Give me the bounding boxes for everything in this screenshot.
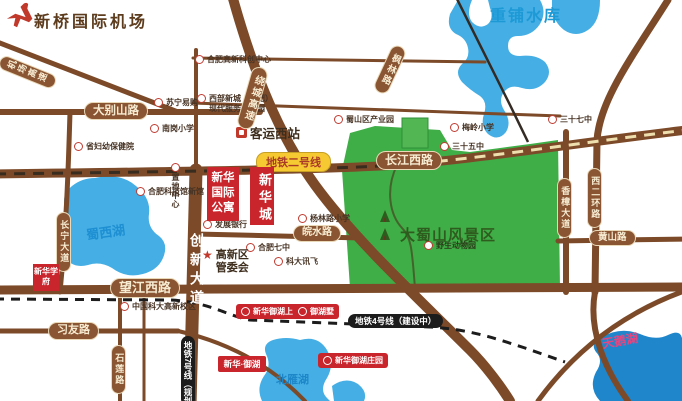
project-yuhu-shu-label: 御湖墅 (310, 306, 334, 317)
project-xinhua-intl-apartment: 新华国际公寓 (207, 167, 239, 221)
trees-icon (380, 209, 400, 245)
huangshan-road-pill: 黄山路 (589, 230, 636, 246)
beiyan-lake-shape-2 (332, 380, 365, 401)
poi-iflytek-label: 科大讯飞 (286, 256, 318, 267)
poi-icon (171, 163, 180, 172)
poi-west-coach-station-label: 客运西站 (250, 123, 300, 142)
project-badge-icon (298, 307, 307, 316)
metro-line7-pill: 地铁7号线（规划中） (181, 336, 195, 401)
poi-icon (274, 257, 283, 266)
metro-line4-pill: 地铁4号线（建设中） (348, 314, 443, 328)
xiyou-road-pill: 习友路 (48, 322, 99, 340)
poi-iflytek: 科大讯飞 (274, 256, 318, 267)
poi-icon (150, 124, 159, 133)
map-canvas: 新桥国际机场 重铺水库 蜀西湖 北雁湖 天鹅湖 大蜀山风景区 大别山路 长江西路… (0, 0, 682, 401)
poi-icon (154, 98, 163, 107)
project-logo-box: 新华·御湖 (218, 356, 266, 372)
poi-no35-label: 三十五中 (452, 141, 484, 152)
wanshui-road-pill: 皖水路 (293, 225, 341, 242)
small-park-shape (402, 118, 428, 148)
xiangzhang-avenue-pill: 香樟大道 (557, 178, 572, 238)
poi-gaoxin-kechuang: 合肥高新科创中心 (195, 54, 271, 65)
project-yuhu-shu: 御湖墅 (293, 304, 339, 319)
poi-hi-tech-committee: ★ 高新区管委会 (202, 249, 252, 274)
project-yuhu-zhuangyuan: 新华御湖庄园 (318, 353, 388, 368)
airplane-icon (7, 3, 33, 27)
poi-icon (136, 187, 145, 196)
airport-title: 新桥国际机场 (34, 8, 148, 32)
chongpu-reservoir-label: 重铺水库 (490, 2, 562, 26)
poi-meiling-school: 梅岭小学 (450, 122, 494, 133)
poi-suning-label: 苏宁易购 (166, 97, 198, 108)
project-yuhu-zhuangyuan-label: 新华御湖庄园 (335, 355, 383, 366)
poi-icon (424, 241, 433, 250)
poi-no37-school: 三十七中 (548, 114, 592, 125)
poi-no35-school: 三十五中 (440, 141, 484, 152)
poi-icon (450, 123, 459, 132)
beiyan-lake-label: 北雁湖 (276, 371, 309, 387)
poi-icon (120, 302, 129, 311)
poi-yanglinlu-school: 杨林路小学 (298, 213, 350, 224)
poi-fuyou-label: 省妇幼保健院 (86, 141, 134, 152)
project-xuefu-box: 新华学府 (33, 264, 59, 291)
poi-zhidi-center: 置地中心 (170, 163, 181, 209)
poi-icon (197, 94, 206, 103)
changning-avenue-pill: 长宁大道 (56, 212, 71, 272)
poi-yanglinlu-school-label: 杨林路小学 (310, 213, 350, 224)
poi-nangang-school: 南岗小学 (150, 123, 194, 134)
west-2nd-ring-pill: 西二环路 (587, 168, 602, 228)
poi-icon (334, 115, 343, 124)
map-base-svg (0, 0, 682, 401)
poi-icon (298, 214, 307, 223)
poi-icon (195, 55, 204, 64)
poi-gaoxin-kechuang-label: 合肥高新科创中心 (207, 54, 271, 65)
poi-hefei-qizhong: 合肥七中 (246, 242, 290, 253)
chuangxin-avenue-name: 创新大道 (187, 233, 207, 309)
poi-nangang-label: 南岗小学 (162, 123, 194, 134)
west-2nd-ring-road (595, 0, 668, 292)
poi-icon (74, 142, 83, 151)
shilian-road-pill: 石莲路 (111, 345, 126, 394)
wangjiangxi-road (0, 287, 682, 290)
poi-icon (440, 142, 449, 151)
wangjiangxi-road-pill: 望江西路 (110, 278, 180, 298)
poi-icon (548, 115, 557, 124)
poi-wildlife-zoo: 野生动物园 (424, 240, 476, 251)
poi-meiling-school-label: 梅岭小学 (462, 122, 494, 133)
project-badge-icon (241, 307, 250, 316)
airport-label: 新桥国际机场 (34, 8, 148, 32)
changjiangxi-road-pill: 长江西路 (376, 151, 442, 170)
poi-shushan-industrial-park-label: 蜀山区产业园 (346, 114, 394, 125)
poi-zhidi-label: 置地中心 (170, 173, 181, 209)
project-xinhua-city: 新华城 (250, 167, 274, 225)
dabieshan-road-pill: 大别山路 (84, 102, 148, 120)
poi-fuyou-hospital: 省妇幼保健院 (74, 141, 134, 152)
poi-hi-tech-committee-label: 高新区管委会 (216, 249, 252, 274)
poi-ustc-campus: 中国科大高新校区 (120, 301, 196, 312)
poi-shushan-industrial-park: 蜀山区产业园 (334, 114, 394, 125)
poi-no37-label: 三十七中 (560, 114, 592, 125)
poi-wildlife-zoo-label: 野生动物园 (436, 240, 476, 251)
project-badge-icon (323, 356, 332, 365)
poi-hefei-qizhong-label: 合肥七中 (258, 242, 290, 253)
poi-icon (203, 220, 212, 229)
poi-suning: 苏宁易购 (154, 97, 198, 108)
